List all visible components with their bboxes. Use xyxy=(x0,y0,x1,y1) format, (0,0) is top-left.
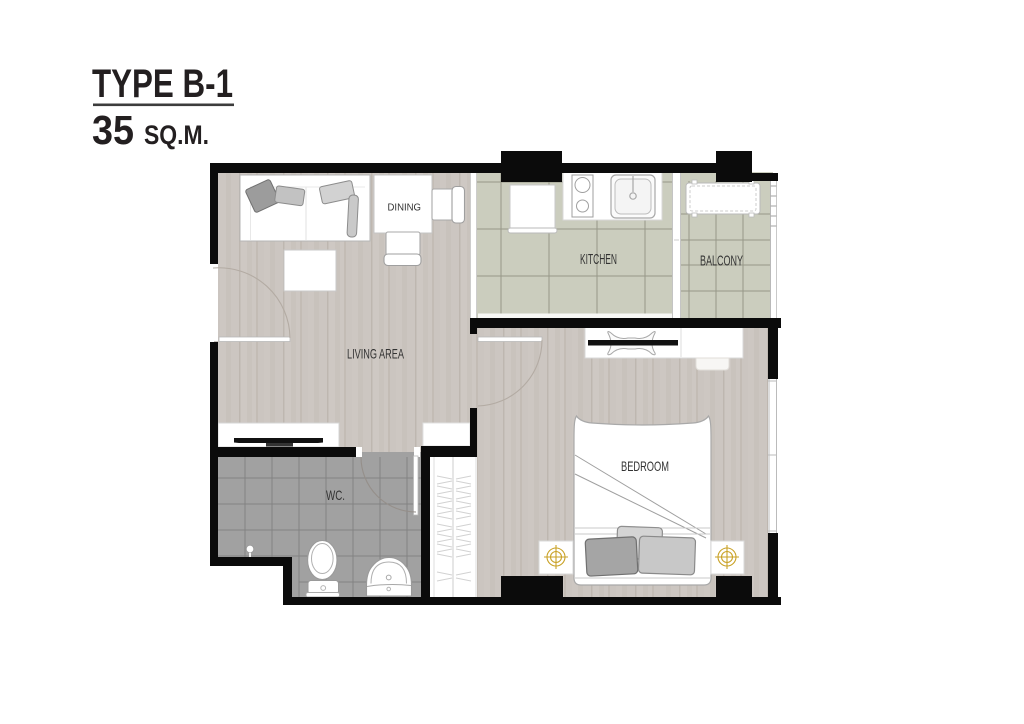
svg-text:BEDROOM: BEDROOM xyxy=(621,458,669,474)
svg-text:LIVING AREA: LIVING AREA xyxy=(347,346,404,362)
svg-text:SQ.M.: SQ.M. xyxy=(144,120,209,150)
svg-text:35: 35 xyxy=(92,107,134,153)
svg-text:BALCONY: BALCONY xyxy=(700,253,743,270)
svg-text:TYPE B-1: TYPE B-1 xyxy=(92,62,233,106)
svg-text:DINING: DINING xyxy=(388,203,422,214)
svg-text:KITCHEN: KITCHEN xyxy=(580,251,617,268)
svg-text:WC.: WC. xyxy=(326,487,345,503)
